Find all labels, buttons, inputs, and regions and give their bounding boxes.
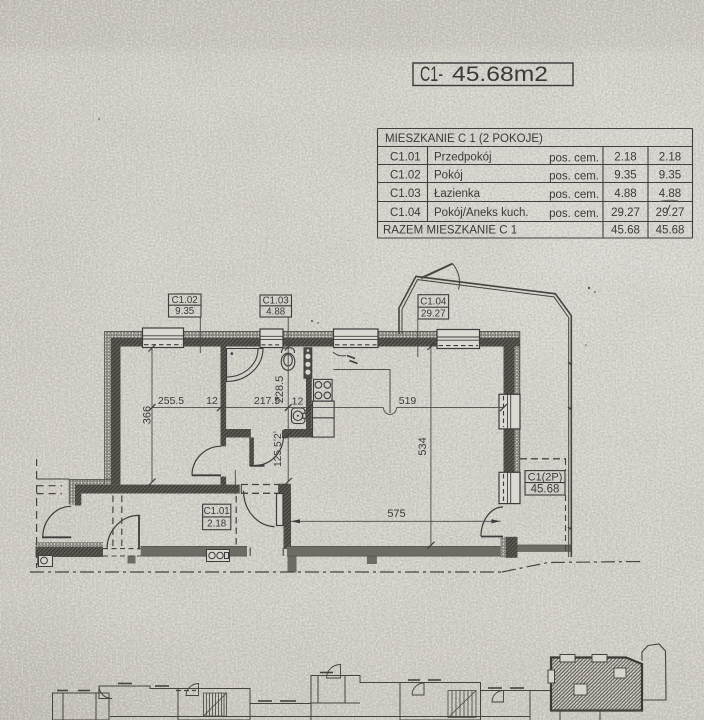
svg-text:Pokój/Aneks kuch.: Pokój/Aneks kuch. (434, 207, 529, 219)
svg-text:4.88: 4.88 (659, 188, 681, 200)
svg-text:MIESZKANIE C 1 (2 POKOJE): MIESZKANIE C 1 (2 POKOJE) (385, 133, 543, 145)
svg-text:4.88: 4.88 (266, 307, 286, 318)
svg-text:29.27: 29.27 (611, 207, 640, 219)
svg-text:pos. cem.: pos. cem. (549, 189, 599, 201)
svg-text:pos. cem.: pos. cem. (549, 208, 599, 220)
svg-text:2.18: 2.18 (614, 152, 636, 164)
svg-text:C1.02: C1.02 (390, 170, 421, 182)
svg-text:366: 366 (142, 406, 154, 424)
svg-text:pos. cem.: pos. cem. (549, 153, 599, 165)
svg-text:Przedpokój: Przedpokój (434, 152, 492, 164)
svg-text:9.35: 9.35 (659, 170, 681, 182)
svg-text:45.68m2: 45.68m2 (452, 63, 548, 86)
svg-text:C1.01: C1.01 (390, 152, 421, 164)
svg-text:C1.01: C1.01 (204, 506, 230, 517)
svg-text:9.35: 9.35 (614, 170, 636, 182)
svg-text:C1-: C1- (420, 63, 443, 86)
svg-text:C1(2P): C1(2P) (528, 471, 563, 483)
svg-text:45.68: 45.68 (531, 484, 560, 496)
svg-text:29.27: 29.27 (656, 207, 685, 219)
svg-text:29.27: 29.27 (421, 309, 446, 320)
svg-text:12: 12 (206, 395, 218, 407)
svg-text:2.18: 2.18 (207, 519, 227, 530)
svg-text:pos. cem.: pos. cem. (549, 171, 599, 183)
svg-text:534: 534 (417, 437, 429, 455)
svg-text:C1.03: C1.03 (263, 296, 290, 307)
svg-text:C1.02: C1.02 (172, 295, 198, 306)
svg-text:228.5: 228.5 (274, 376, 286, 404)
svg-text:45.68: 45.68 (611, 225, 640, 237)
svg-text:RAZEM MIESZKANIE C 1: RAZEM MIESZKANIE C 1 (383, 225, 517, 237)
svg-text:C1.04: C1.04 (420, 297, 447, 308)
svg-text:575: 575 (387, 508, 405, 520)
svg-text:9.35: 9.35 (175, 306, 195, 317)
svg-text:C1.03: C1.03 (390, 188, 421, 200)
svg-text:519: 519 (399, 395, 417, 407)
svg-text:12: 12 (292, 396, 304, 408)
svg-text:C1.04: C1.04 (390, 207, 421, 219)
svg-text:125.5ʼ2ʼ: 125.5ʼ2ʼ (273, 431, 284, 467)
svg-text:4.88: 4.88 (614, 188, 636, 200)
svg-text:Pokój: Pokój (434, 170, 463, 182)
svg-text:Łazienka: Łazienka (434, 188, 481, 200)
svg-text:255.5: 255.5 (158, 395, 184, 407)
svg-text:2.18: 2.18 (659, 152, 681, 164)
svg-text:45.68: 45.68 (656, 225, 685, 237)
